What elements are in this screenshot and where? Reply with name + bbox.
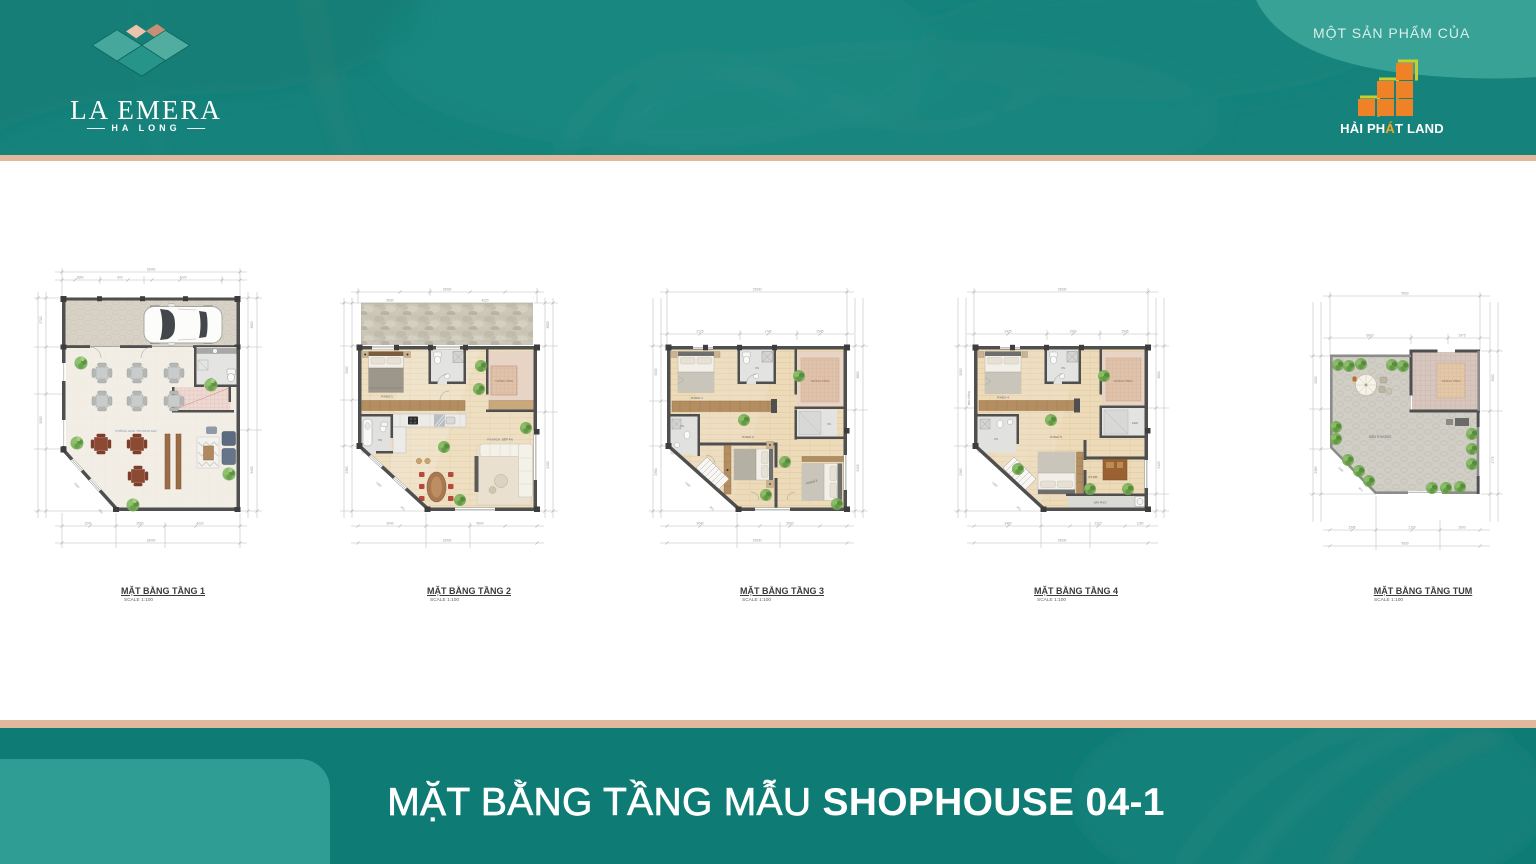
svg-text:5900: 5900 (476, 522, 483, 526)
svg-text:16000: 16000 (147, 539, 156, 543)
svg-text:4220: 4220 (196, 522, 203, 526)
svg-text:950: 950 (1358, 486, 1365, 493)
svg-text:2425: 2425 (1004, 330, 1011, 334)
svg-text:15930: 15930 (443, 539, 452, 543)
svg-text:THÔNG TẦNG: THÔNG TẦNG (810, 378, 830, 383)
svg-text:2360: 2360 (654, 468, 658, 475)
svg-text:P.NGỦ 1: P.NGỦ 1 (691, 395, 703, 400)
svg-text:5400: 5400 (250, 466, 254, 473)
svg-text:5900: 5900 (786, 522, 793, 526)
svg-text:2600: 2600 (1458, 526, 1465, 530)
svg-text:2500: 2500 (136, 522, 143, 526)
svg-text:P.THỜ: P.THỜ (1088, 474, 1097, 479)
svg-text:3460: 3460 (1004, 522, 1011, 526)
svg-text:1985: 1985 (375, 481, 383, 489)
svg-text:9530: 9530 (1401, 292, 1408, 296)
svg-text:2975: 2975 (1458, 334, 1465, 338)
svg-text:1985: 1985 (684, 481, 692, 489)
svg-text:KHO: KHO (1132, 421, 1139, 425)
svg-text:2360: 2360 (959, 468, 963, 475)
svg-text:1740: 1740 (764, 330, 771, 334)
svg-text:SÂN THƯỢNG: SÂN THƯỢNG (1369, 435, 1391, 439)
svg-text:9530: 9530 (1401, 542, 1408, 546)
svg-text:VS: VS (1061, 366, 1065, 370)
svg-text:VS: VS (680, 424, 684, 428)
svg-text:KHÔNG GIAN THƯƠNG MẠI: KHÔNG GIAN THƯƠNG MẠI (116, 428, 157, 433)
svg-text:4220: 4220 (481, 299, 488, 303)
svg-text:950: 950 (709, 505, 716, 512)
svg-text:VS: VS (827, 422, 831, 426)
svg-text:15930: 15930 (1058, 288, 1067, 292)
svg-text:5000: 5000 (345, 366, 349, 373)
svg-text:2700: 2700 (39, 316, 43, 323)
svg-text:950: 950 (98, 508, 105, 515)
svg-text:VS: VS (378, 438, 382, 442)
svg-text:P.NGỦ 2: P.NGỦ 2 (742, 434, 754, 439)
svg-text:P.NGỦ 1: P.NGỦ 1 (381, 394, 393, 399)
svg-text:2945: 2945 (1121, 330, 1128, 334)
svg-text:2345: 2345 (1348, 526, 1355, 530)
svg-text:2360: 2360 (1314, 466, 1318, 473)
svg-text:3600: 3600 (1157, 371, 1161, 378)
svg-text:1860: 1860 (76, 276, 83, 280)
svg-text:5000: 5000 (654, 368, 658, 375)
svg-text:950: 950 (1016, 505, 1023, 512)
svg-text:1500: 1500 (1069, 330, 1076, 334)
svg-text:1985: 1985 (1337, 466, 1345, 474)
svg-text:1985: 1985 (991, 481, 999, 489)
svg-text:VS: VS (994, 437, 998, 441)
svg-text:950: 950 (400, 505, 407, 512)
svg-text:2100: 2100 (1408, 526, 1415, 530)
svg-text:5000: 5000 (959, 368, 963, 375)
svg-text:5930: 5930 (386, 299, 393, 303)
svg-text:4220: 4220 (179, 276, 186, 280)
svg-text:2360: 2360 (345, 466, 349, 473)
svg-text:3040: 3040 (386, 522, 393, 526)
svg-text:1190: 1190 (1137, 522, 1144, 526)
svg-text:P.KHÁCH, BẾP ĂN: P.KHÁCH, BẾP ĂN (487, 437, 513, 442)
svg-text:VS: VS (755, 366, 759, 370)
svg-text:6600: 6600 (1366, 334, 1373, 338)
svg-text:5420: 5420 (1157, 461, 1161, 468)
svg-text:15930: 15930 (753, 539, 762, 543)
svg-text:BAN CÔNG: BAN CÔNG (966, 391, 971, 405)
svg-text:3360: 3360 (73, 482, 81, 490)
svg-text:5000: 5000 (1314, 376, 1318, 383)
svg-text:3000: 3000 (1491, 374, 1495, 381)
svg-text:2320: 2320 (1094, 522, 1101, 526)
svg-text:4775: 4775 (1491, 456, 1495, 463)
svg-text:THÔNG TẦNG: THÔNG TẦNG (1441, 378, 1461, 383)
svg-text:15930: 15930 (753, 288, 762, 292)
svg-text:P.NGỦ 5: P.NGỦ 5 (1050, 434, 1062, 439)
svg-text:600: 600 (117, 276, 123, 280)
svg-text:2175: 2175 (696, 330, 703, 334)
svg-text:3040: 3040 (696, 522, 703, 526)
svg-text:THÔNG TẦNG: THÔNG TẦNG (1113, 378, 1133, 383)
svg-text:15930: 15930 (1058, 539, 1067, 543)
svg-text:16000: 16000 (147, 268, 156, 272)
svg-text:3600: 3600 (546, 321, 550, 328)
svg-text:5420: 5420 (856, 464, 860, 471)
svg-text:2945: 2945 (816, 330, 823, 334)
svg-text:P.NGỦ 4: P.NGỦ 4 (997, 395, 1009, 400)
svg-text:3600: 3600 (856, 371, 860, 378)
svg-text:5400: 5400 (546, 461, 550, 468)
svg-text:3600: 3600 (250, 321, 254, 328)
svg-text:15930: 15930 (443, 288, 452, 292)
svg-text:5000: 5000 (39, 416, 43, 423)
